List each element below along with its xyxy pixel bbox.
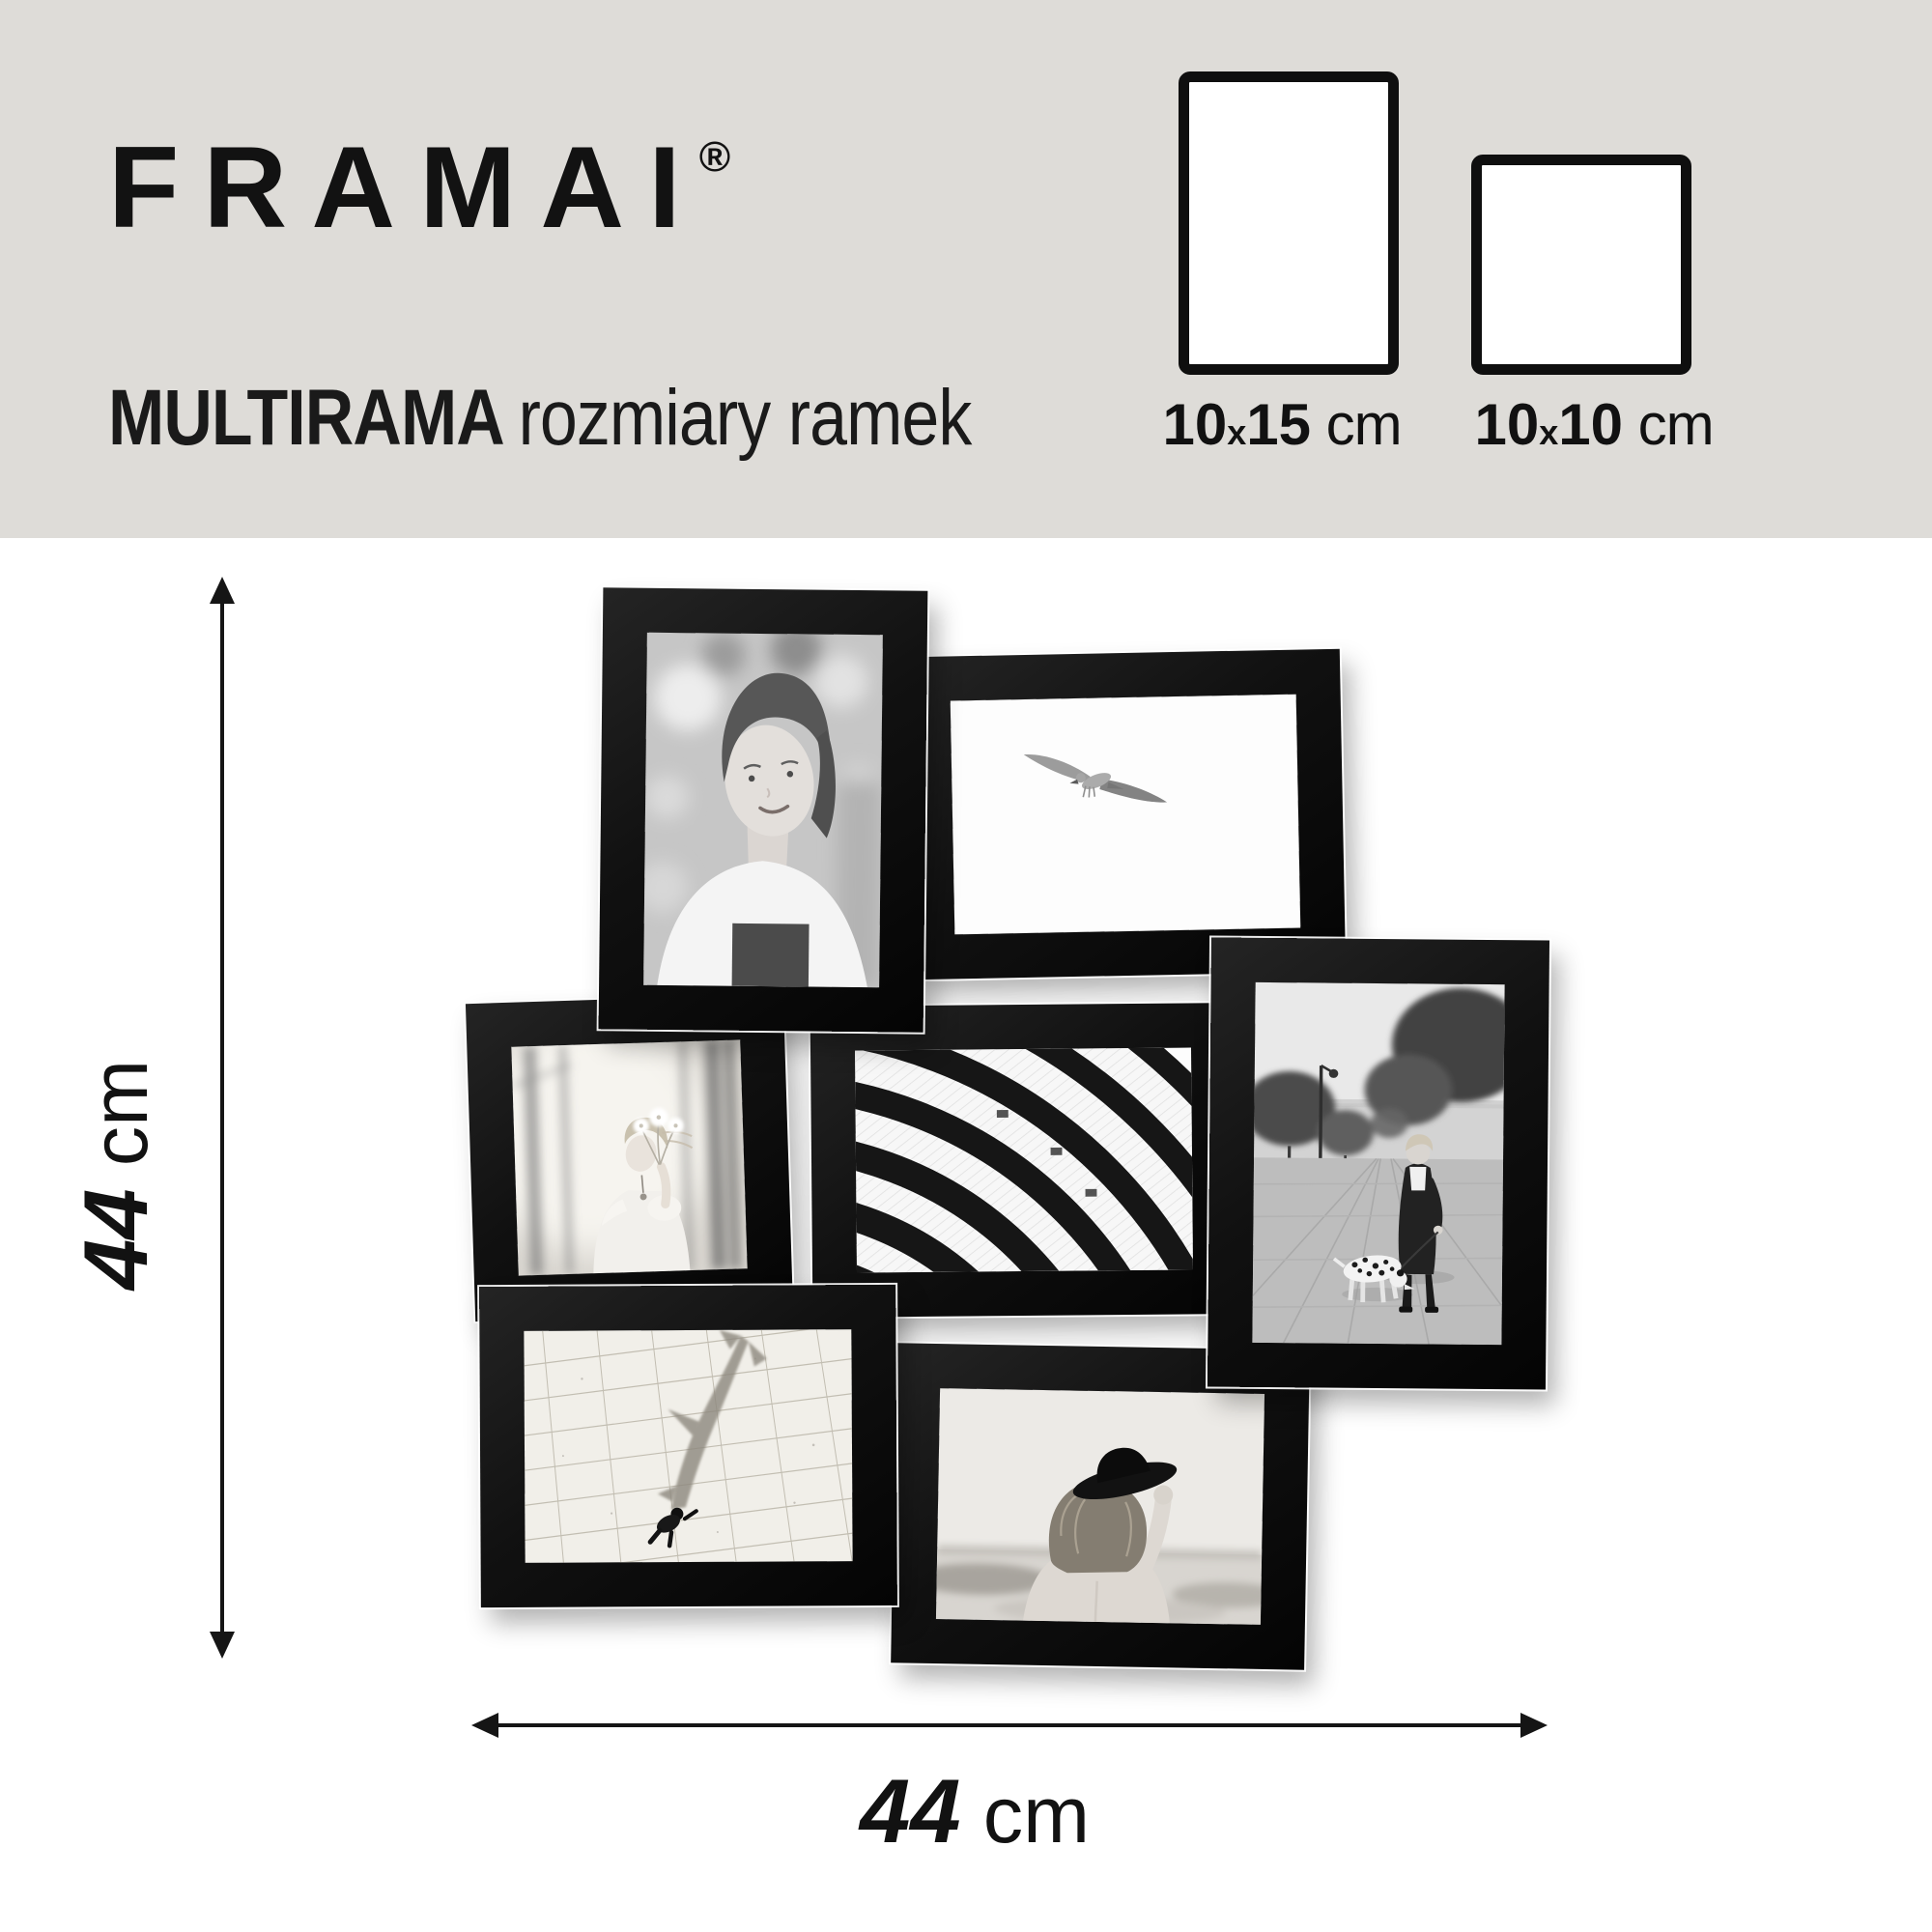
size-diagram-10x10 — [1471, 155, 1691, 375]
frame-pavement-shadow — [479, 1285, 897, 1607]
header-band: FRAMAI® MULTIRAMArozmiary ramek 10x15cm … — [0, 0, 1932, 538]
photo-pavement-shadow — [524, 1329, 852, 1563]
pavement-shadow-image — [524, 1329, 852, 1563]
photo-striped-architecture — [855, 1047, 1193, 1272]
woman-with-hat-image — [936, 1388, 1264, 1625]
height-dimension-arrow — [206, 577, 239, 1659]
width-dimension-arrow — [471, 1709, 1548, 1742]
size-label-10x15: 10x15cm — [1162, 396, 1401, 454]
subtitle-text: rozmiary ramek — [519, 374, 972, 463]
photo-woman-with-hat — [936, 1388, 1264, 1625]
width-dimension-label: 44cm — [860, 1766, 1090, 1857]
frame-seagull — [905, 649, 1346, 980]
product-subtitle: MULTIRAMArozmiary ramek — [108, 379, 971, 458]
brand-logo: FRAMAI® — [108, 129, 736, 245]
seagull-image — [951, 695, 1301, 935]
photo-woman-with-dalmatian — [1252, 982, 1504, 1345]
photo-seagull — [951, 695, 1301, 935]
photo-dandelion-woman — [511, 1039, 747, 1275]
frame-woman-with-dalmatian — [1207, 937, 1549, 1389]
photo-portrait-woman — [643, 633, 883, 988]
series-name: MULTIRAMA — [108, 374, 504, 463]
brand-text: FRAMAI — [108, 123, 705, 252]
product-infographic: FRAMAI® MULTIRAMArozmiary ramek 10x15cm … — [0, 0, 1932, 1932]
size-label-10x10: 10x10cm — [1474, 396, 1713, 454]
woman-with-dalmatian-image — [1252, 982, 1504, 1345]
frame-striped-architecture — [810, 1003, 1238, 1318]
registered-mark: ® — [699, 133, 730, 181]
frame-portrait-woman — [599, 587, 928, 1032]
striped-architecture-image — [855, 1047, 1193, 1272]
size-diagram-10x15 — [1179, 71, 1399, 375]
frame-dandelion-woman — [466, 994, 793, 1321]
frame-woman-with-hat — [891, 1343, 1310, 1669]
dandelion-woman-image — [511, 1039, 747, 1275]
portrait-woman-image — [643, 633, 883, 988]
